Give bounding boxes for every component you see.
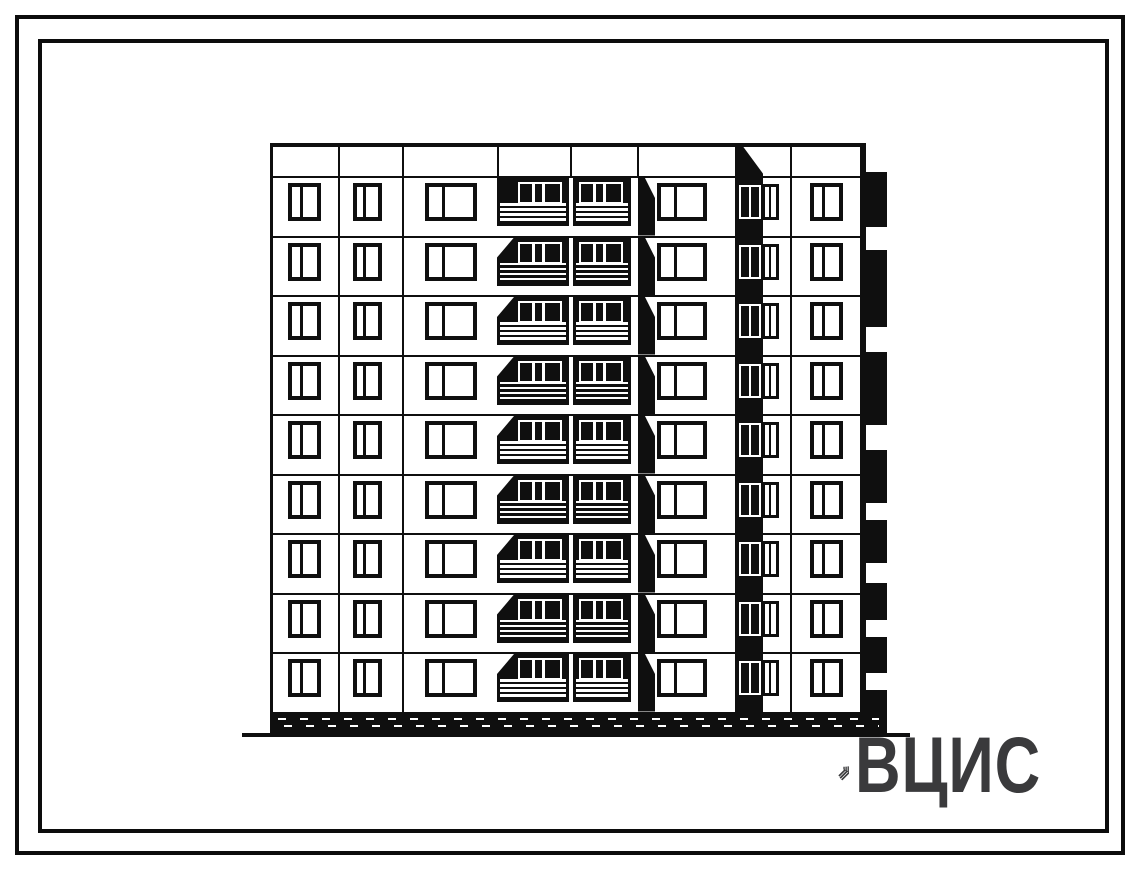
balcony-railing-stripe [576, 630, 628, 633]
balcony-railing-stripe [500, 397, 566, 400]
window-casement-divider [442, 247, 445, 277]
balcony-railing-stripe [576, 456, 628, 459]
window [288, 540, 321, 578]
balcony-window [518, 480, 562, 502]
balcony-railing-stripe [500, 273, 566, 276]
balcony-railing-stripe [576, 273, 628, 276]
balcony-window-mullion [593, 660, 596, 678]
stair-window-mullion [749, 425, 751, 455]
balcony-window-mullion [542, 482, 545, 500]
stair-window-mullion [749, 485, 751, 515]
window [353, 243, 382, 281]
window-casement-divider [300, 604, 303, 634]
logo-text: ВЦИС [855, 725, 1041, 804]
window-casement-divider [300, 425, 303, 455]
balcony-railing-stripe [500, 268, 566, 271]
balcony-window-mullion [542, 422, 545, 440]
window [353, 362, 382, 400]
balcony-window-mullion [593, 363, 596, 381]
balcony-window-mullion [532, 303, 535, 321]
stair-window-left [739, 483, 761, 517]
balcony-side-shadow [638, 295, 655, 355]
balcony-railing-stripe [576, 694, 628, 697]
window-casement-divider [442, 663, 445, 693]
balcony-window-mullion [603, 244, 606, 262]
balcony-window-mullion [532, 660, 535, 678]
balcony-window [518, 182, 562, 204]
balcony-railing-stripe [576, 511, 628, 514]
window-casement-divider [674, 544, 677, 574]
balcony-railing-stripe [576, 635, 628, 638]
stair-window-divider [769, 425, 771, 455]
balcony-window [579, 361, 623, 383]
window [425, 421, 477, 459]
balcony-window-mullion [593, 541, 596, 559]
window-casement-divider [300, 247, 303, 277]
window-casement-divider [363, 604, 366, 634]
window [353, 600, 382, 638]
balcony-window [579, 480, 623, 502]
window-casement-divider [300, 366, 303, 396]
balcony-railing-stripe [576, 446, 628, 449]
window-casement-divider [674, 366, 677, 396]
balcony-railing-stripe [576, 565, 628, 568]
window [810, 243, 843, 281]
plinth-hatch [278, 718, 879, 721]
balcony-side-shadow [638, 652, 655, 712]
balcony-window-mullion [532, 482, 535, 500]
window [657, 600, 707, 638]
window [657, 540, 707, 578]
window-casement-divider [363, 366, 366, 396]
balcony-railing-stripe [576, 451, 628, 454]
stair-window-divider [769, 485, 771, 515]
window-casement-divider [363, 663, 366, 693]
balcony-window-mullion [532, 363, 535, 381]
balcony-window-mullion [593, 303, 596, 321]
window [288, 302, 321, 340]
window-casement-divider [442, 544, 445, 574]
balcony-side-shadow [638, 355, 655, 415]
balcony-railing-stripe [500, 689, 566, 692]
plinth [270, 712, 887, 734]
window [288, 600, 321, 638]
balcony-side-shadow [638, 593, 655, 653]
window [288, 481, 321, 519]
window [657, 362, 707, 400]
window [288, 362, 321, 400]
window [353, 659, 382, 697]
balcony-railing-stripe [500, 565, 566, 568]
building-elevation [242, 143, 922, 743]
side-balcony-block [866, 352, 887, 425]
window-casement-divider [822, 663, 825, 693]
balcony-window [579, 301, 623, 323]
balcony-railing-stripe [576, 625, 628, 628]
window [657, 481, 707, 519]
balcony-railing-stripe [500, 332, 566, 335]
stair-window-right [762, 660, 779, 696]
stair-window-left [739, 542, 761, 576]
window [353, 421, 382, 459]
stair-window-divider [769, 306, 771, 336]
window [425, 183, 477, 221]
side-balcony-block [866, 583, 887, 620]
balcony-railing-stripe [500, 387, 566, 390]
parapet-bay-line [637, 147, 639, 176]
balcony-railing-stripe [500, 625, 566, 628]
window [657, 421, 707, 459]
window-casement-divider [822, 544, 825, 574]
balcony-railing-stripe [500, 570, 566, 573]
stairwell-parapet-shadow [735, 147, 763, 176]
stair-window-mullion [749, 306, 751, 336]
window [353, 302, 382, 340]
window-casement-divider [300, 663, 303, 693]
balcony-window-mullion [532, 601, 535, 619]
window-casement-divider [363, 425, 366, 455]
balcony-railing-stripe [500, 511, 566, 514]
balcony-railing-stripe [576, 337, 628, 340]
window [425, 481, 477, 519]
window-casement-divider [822, 366, 825, 396]
balcony-window-mullion [593, 422, 596, 440]
balcony-window [518, 420, 562, 442]
balcony-window [518, 301, 562, 323]
balcony-window-mullion [532, 422, 535, 440]
window-casement-divider [674, 306, 677, 336]
balcony-railing-stripe [500, 337, 566, 340]
balcony-window-mullion [532, 244, 535, 262]
balcony-window-mullion [593, 184, 596, 202]
balcony-window-mullion [593, 601, 596, 619]
balcony-window [579, 658, 623, 680]
window [288, 243, 321, 281]
balcony-railing-stripe [500, 456, 566, 459]
stair-window-mullion [749, 187, 751, 217]
stair-window-mullion [749, 544, 751, 574]
window-casement-divider [674, 663, 677, 693]
balcony-window [579, 539, 623, 561]
window [288, 421, 321, 459]
window-casement-divider [442, 425, 445, 455]
window-casement-divider [442, 306, 445, 336]
balcony-window [518, 361, 562, 383]
window [425, 243, 477, 281]
balcony-window [579, 182, 623, 204]
stair-window-mullion [749, 604, 751, 634]
stair-window-left [739, 245, 761, 279]
window [657, 243, 707, 281]
balcony-window-mullion [542, 660, 545, 678]
stair-window-right [762, 601, 779, 637]
balcony-window-mullion [603, 482, 606, 500]
stair-window-mullion [749, 247, 751, 277]
window-casement-divider [300, 306, 303, 336]
window [657, 659, 707, 697]
side-balcony-block [866, 450, 887, 503]
window-casement-divider [300, 485, 303, 515]
stair-window-mullion [749, 663, 751, 693]
balcony-window-mullion [603, 541, 606, 559]
balcony-railing-stripe [576, 387, 628, 390]
stair-window-left [739, 364, 761, 398]
side-balcony-block [866, 637, 887, 673]
side-balcony-block [866, 520, 887, 563]
window-casement-divider [822, 485, 825, 515]
balcony-railing-stripe [576, 392, 628, 395]
balcony-railing-stripe [500, 218, 566, 221]
building-left-edge [270, 143, 273, 712]
window-casement-divider [442, 604, 445, 634]
balcony-window-mullion [603, 363, 606, 381]
balcony-railing-stripe [500, 208, 566, 211]
window-casement-divider [363, 306, 366, 336]
balcony-railing-stripe [500, 575, 566, 578]
bay-line [338, 147, 340, 712]
balcony-railing-stripe [576, 218, 628, 221]
window [810, 362, 843, 400]
window-casement-divider [442, 187, 445, 217]
balcony-side-shadow [638, 533, 655, 593]
balcony-window-mullion [532, 184, 535, 202]
balcony-railing-stripe [500, 327, 566, 330]
balcony-side-shadow [638, 236, 655, 296]
balcony-railing-stripe [500, 516, 566, 519]
window [810, 302, 843, 340]
balcony-window-mullion [542, 363, 545, 381]
balcony-railing-stripe [500, 392, 566, 395]
balcony-railing-stripe [576, 332, 628, 335]
balcony-railing-stripe [576, 213, 628, 216]
building-top-edge [270, 143, 866, 147]
stair-window-left [739, 602, 761, 636]
stair-window-divider [769, 544, 771, 574]
balcony-railing-stripe [576, 516, 628, 519]
stair-window-divider [769, 247, 771, 277]
balcony-window [518, 599, 562, 621]
window-casement-divider [674, 485, 677, 515]
window [288, 659, 321, 697]
window [810, 421, 843, 459]
balcony-side-shadow [638, 176, 655, 236]
stair-window-divider [769, 366, 771, 396]
stair-window-mullion [749, 366, 751, 396]
balcony-window [579, 242, 623, 264]
stair-window-right [762, 541, 779, 577]
balcony-railing-stripe [500, 213, 566, 216]
window [353, 183, 382, 221]
bay-line [402, 147, 404, 712]
window [425, 600, 477, 638]
stair-window-left [739, 661, 761, 695]
stair-window-right [762, 244, 779, 280]
balcony-railing-stripe [576, 268, 628, 271]
balcony-railing-stripe [500, 446, 566, 449]
window-casement-divider [822, 187, 825, 217]
balcony-window-mullion [532, 541, 535, 559]
drawing-sheet: ВЦИС [0, 0, 1139, 869]
balcony-window-mullion [542, 303, 545, 321]
window-casement-divider [674, 604, 677, 634]
stair-window-left [739, 185, 761, 219]
window-casement-divider [363, 485, 366, 515]
balcony-side-shadow [638, 474, 655, 534]
window-casement-divider [300, 544, 303, 574]
balcony-railing-stripe [500, 451, 566, 454]
balcony-railing-stripe [576, 506, 628, 509]
stair-window-divider [769, 663, 771, 693]
ground-line [242, 733, 910, 737]
stair-window-divider [769, 604, 771, 634]
window [810, 183, 843, 221]
parapet-bay-line [497, 147, 499, 176]
balcony-window [579, 599, 623, 621]
balcony-window [518, 658, 562, 680]
balcony-window-mullion [603, 601, 606, 619]
balcony-window-mullion [542, 184, 545, 202]
balcony-railing-stripe [576, 278, 628, 281]
balcony-railing-stripe [576, 327, 628, 330]
balcony-railing-stripe [500, 635, 566, 638]
stair-window-right [762, 303, 779, 339]
balcony-window-mullion [603, 303, 606, 321]
balcony-railing-stripe [576, 397, 628, 400]
window [657, 302, 707, 340]
balcony-window-mullion [603, 660, 606, 678]
vcis-logo: ВЦИС [838, 727, 1088, 817]
balcony-railing-stripe [500, 684, 566, 687]
window [288, 183, 321, 221]
window [425, 302, 477, 340]
balcony-window-mullion [593, 244, 596, 262]
balcony-window-mullion [542, 541, 545, 559]
window [425, 540, 477, 578]
bay-line [790, 147, 792, 712]
stair-window-right [762, 184, 779, 220]
window-casement-divider [363, 187, 366, 217]
window [810, 600, 843, 638]
balcony-window [579, 420, 623, 442]
window [657, 183, 707, 221]
side-balcony-block [866, 172, 887, 227]
window-casement-divider [822, 604, 825, 634]
stair-window-right [762, 482, 779, 518]
balcony-railing-stripe [500, 694, 566, 697]
window-casement-divider [363, 544, 366, 574]
window-casement-divider [674, 187, 677, 217]
balcony-window [518, 539, 562, 561]
side-balcony-block [866, 250, 887, 327]
window [810, 659, 843, 697]
window-casement-divider [822, 306, 825, 336]
window-casement-divider [363, 247, 366, 277]
balcony-window-mullion [603, 422, 606, 440]
balcony-railing-stripe [576, 689, 628, 692]
balcony-window-mullion [542, 244, 545, 262]
stair-window-left [739, 304, 761, 338]
logo-mark-icon [838, 735, 849, 811]
balcony-railing-stripe [576, 575, 628, 578]
window [425, 362, 477, 400]
building-right-edge [860, 143, 866, 712]
balcony-railing-stripe [576, 570, 628, 573]
plinth-hatch [284, 725, 879, 728]
window-casement-divider [822, 425, 825, 455]
balcony-railing-stripe [576, 684, 628, 687]
window [425, 659, 477, 697]
balcony-window-mullion [593, 482, 596, 500]
window-casement-divider [442, 485, 445, 515]
balcony-window-mullion [542, 601, 545, 619]
window [810, 481, 843, 519]
balcony-railing-stripe [576, 208, 628, 211]
parapet-bay-line [570, 147, 572, 176]
window [353, 540, 382, 578]
balcony-railing-stripe [500, 630, 566, 633]
window [810, 540, 843, 578]
window-casement-divider [674, 247, 677, 277]
balcony-side-shadow [638, 414, 655, 474]
stair-window-divider [769, 187, 771, 217]
stair-window-right [762, 422, 779, 458]
window-casement-divider [822, 247, 825, 277]
balcony-railing-stripe [500, 506, 566, 509]
balcony-window-mullion [603, 184, 606, 202]
stair-window-left [739, 423, 761, 457]
balcony-railing-stripe [500, 278, 566, 281]
window [353, 481, 382, 519]
stair-window-right [762, 363, 779, 399]
window-casement-divider [442, 366, 445, 396]
window-casement-divider [674, 425, 677, 455]
balcony-window [518, 242, 562, 264]
window-casement-divider [300, 187, 303, 217]
